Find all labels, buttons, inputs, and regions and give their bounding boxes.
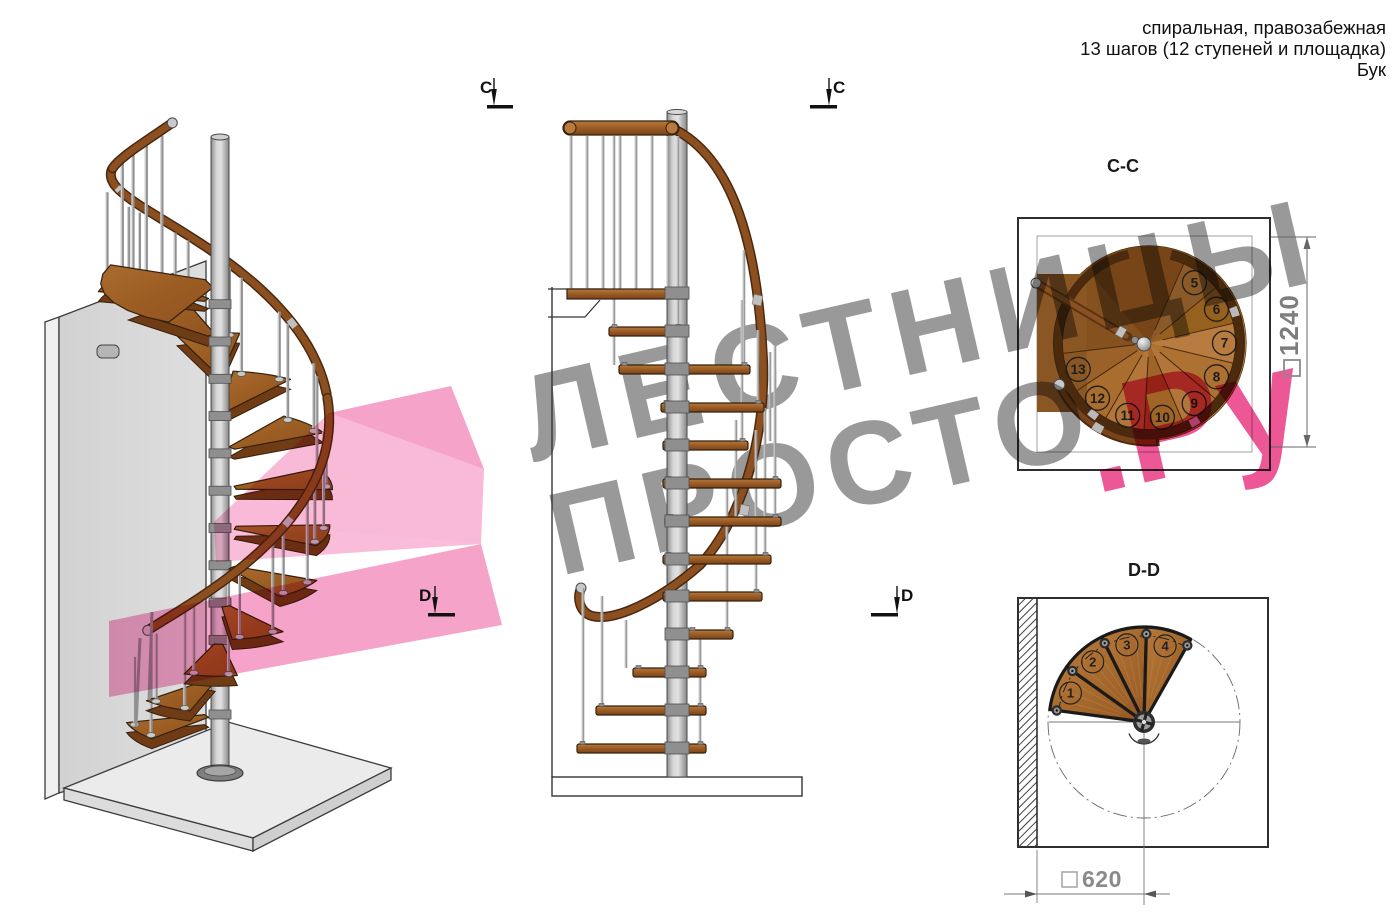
svg-text:D: D — [901, 586, 913, 605]
svg-text:D-D: D-D — [1128, 560, 1160, 580]
svg-text:Бук: Бук — [1357, 59, 1387, 80]
svg-text:4: 4 — [1161, 638, 1169, 653]
svg-text:2: 2 — [1089, 654, 1096, 669]
svg-text:3: 3 — [1123, 637, 1130, 652]
svg-text:C: C — [480, 78, 492, 97]
svg-text:D: D — [419, 586, 431, 605]
svg-text:1: 1 — [1067, 686, 1074, 701]
svg-text:620: 620 — [1082, 866, 1122, 892]
svg-text:C-C: C-C — [1107, 156, 1139, 176]
svg-text:13 шагов (12 ступеней и площад: 13 шагов (12 ступеней и площадка) — [1080, 38, 1386, 59]
svg-text:C: C — [833, 78, 845, 97]
svg-text:1240: 1240 — [1274, 294, 1304, 356]
svg-text:спиральная, правозабежная: спиральная, правозабежная — [1142, 17, 1386, 38]
